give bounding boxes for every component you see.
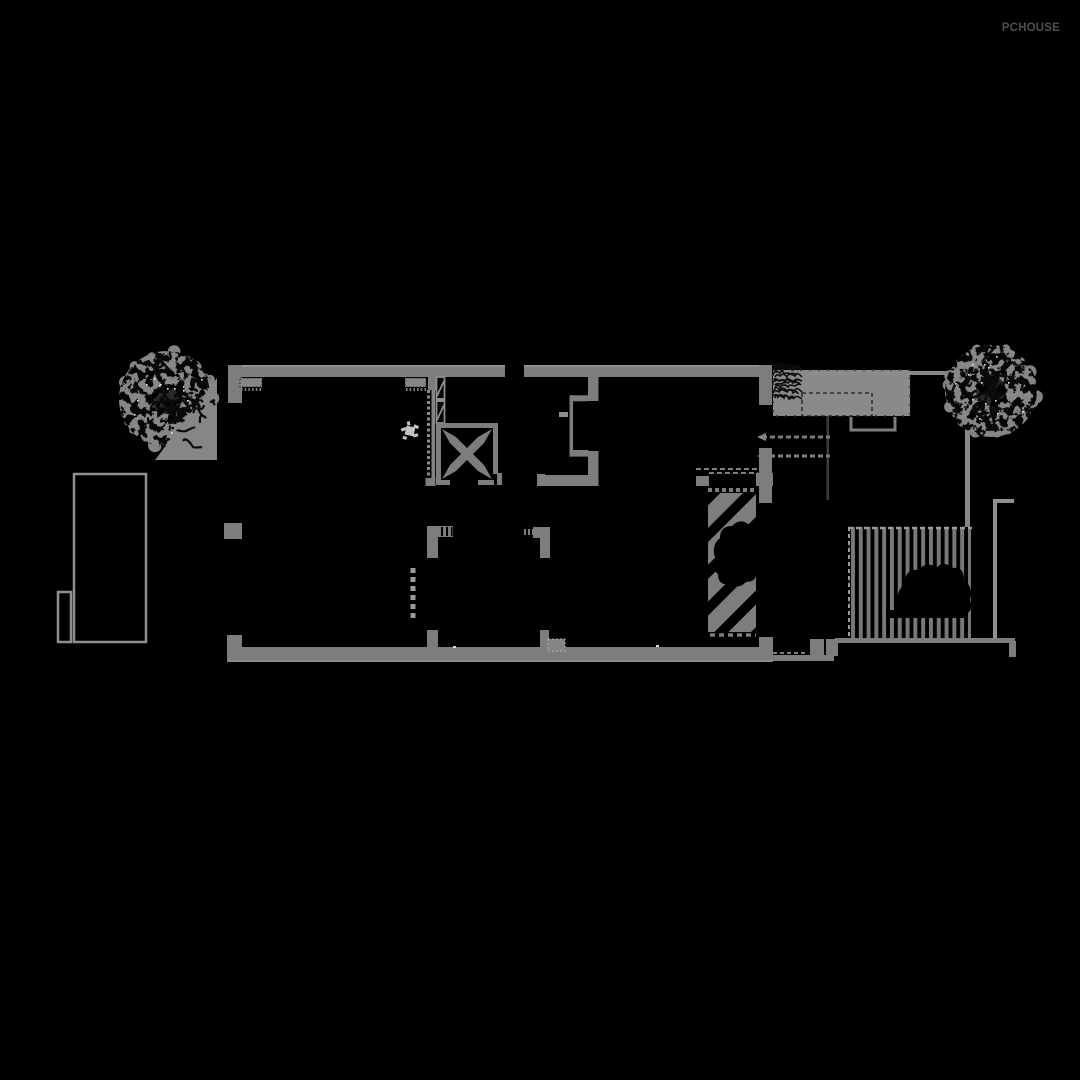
svg-text:PCHOUSE: PCHOUSE	[1002, 22, 1060, 34]
